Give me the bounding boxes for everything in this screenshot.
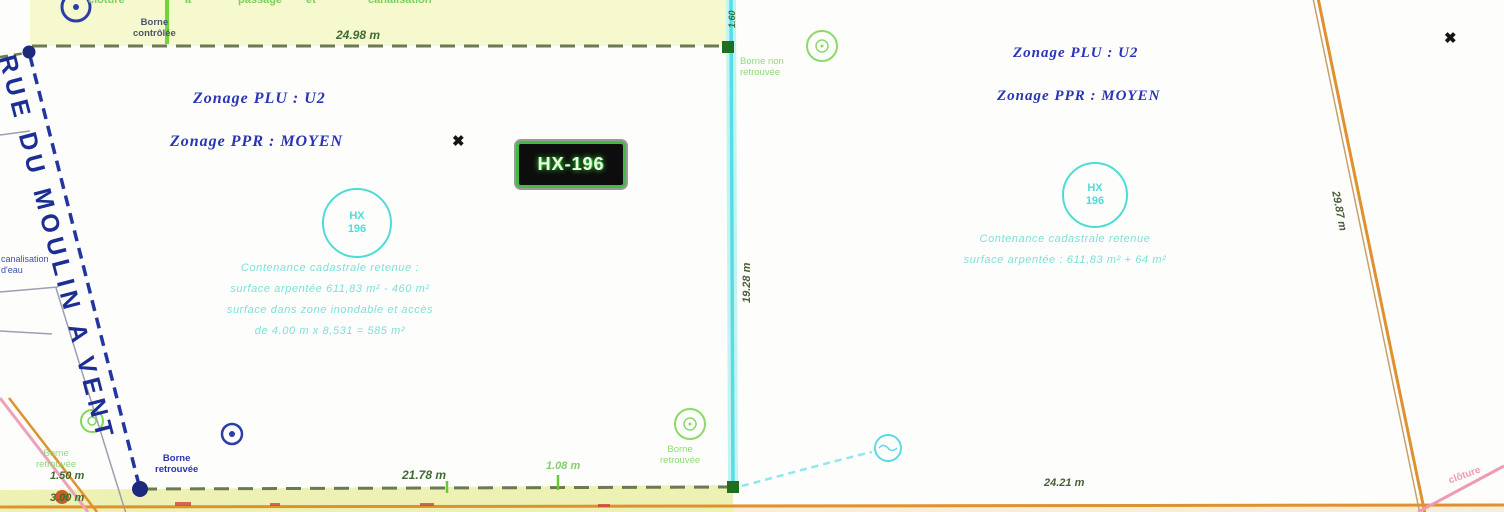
parcel-reference-box: HX-196: [516, 141, 626, 188]
utility-circle-top-center: [807, 31, 837, 61]
borne-label-bottom-center: Borne retrouvée: [660, 444, 700, 467]
parcel-circle-right-line1: HX: [1087, 182, 1102, 195]
surface-notes-left-line3: surface dans zone inondable et accès: [170, 304, 490, 316]
orange-road-edge-thin: [1313, 0, 1420, 512]
blue-target-marker: [222, 424, 242, 444]
x-marker-icon: ✖: [452, 132, 465, 150]
zone-left-ppr: Zonage PPR : MOYEN: [170, 133, 343, 151]
utility-circle-bottom-center: [675, 409, 705, 439]
parcel-circle-left-line2: 196: [348, 223, 366, 236]
water-circle-center: [875, 435, 901, 461]
surface-notes-right-line1: Contenance cadastrale retenue: [920, 233, 1210, 245]
measure-bottom-right: 24.21 m: [1044, 477, 1084, 489]
surface-notes-left-line1: Contenance cadastrale retenue :: [170, 262, 490, 274]
cyan-division-line: [731, 0, 733, 489]
cadastral-plan: Zonage PLU : U2 Zonage PPR : MOYEN Zonag…: [0, 0, 1504, 512]
measure-top-center-vertical: 1.60: [727, 10, 737, 28]
blue-dot-top-left: [23, 46, 36, 59]
x-marker-icon: ✖: [1444, 29, 1457, 47]
top-fragment-5: canalisation: [368, 0, 432, 6]
zone-left-plu: Zonage PLU : U2: [193, 90, 326, 108]
measure-center-vertical: 19.28 m: [741, 263, 753, 303]
cyan-leader: [742, 452, 872, 486]
borne-square-bottom: [727, 481, 739, 493]
top-fragment-4: et: [306, 0, 316, 6]
borne-label-bottom-left-blue: Borne retrouvée: [155, 453, 198, 476]
parcel-circle-right-line2: 196: [1086, 195, 1104, 208]
surface-notes-left-line4: de 4.00 m x 8,531 = 585 m²: [170, 325, 490, 337]
measure-bottom-left-a: 1.50 m: [50, 470, 84, 482]
surface-notes-right-line2: surface arpentée : 611,83 m² + 64 m²: [920, 254, 1210, 266]
measure-bottom-small: 1.08 m: [546, 460, 580, 472]
measure-bottom-center: 21.78 m: [402, 468, 446, 482]
top-fragment-2: a: [185, 0, 191, 6]
parcel-circle-left-line1: HX: [349, 210, 364, 223]
surface-notes-left: Contenance cadastrale retenue : surface …: [170, 262, 490, 346]
measure-top-edge: 24.98 m: [336, 28, 380, 42]
bottom-orange-road: [0, 505, 1504, 507]
orange-road-edge: [1318, 0, 1425, 512]
borne-label-top-left: Borne contrôlée: [133, 17, 176, 40]
surface-notes-right: Contenance cadastrale retenue surface ar…: [920, 233, 1210, 275]
canalisation-label: canalisation d'eau: [1, 254, 49, 276]
measure-bottom-left-b: 3.00 m: [50, 492, 84, 504]
borne-square-top: [722, 41, 734, 53]
surface-notes-left-line2: surface arpentée 611,83 m² - 460 m²: [170, 283, 490, 295]
parcel-circle-right: HX 196: [1062, 162, 1128, 228]
parcel-circle-left: HX 196: [322, 188, 392, 258]
borne-label-top-center: Borne non retrouvée: [740, 56, 784, 79]
zone-right-plu: Zonage PLU : U2: [1013, 45, 1138, 62]
blue-dot-bottom-left: [132, 481, 148, 497]
zone-right-ppr: Zonage PPR : MOYEN: [997, 88, 1160, 105]
top-fragment-1: clôture: [88, 0, 125, 6]
top-fragment-3: passage: [238, 0, 282, 6]
borne-label-bottom-left-green: Borne retrouvée: [36, 448, 76, 471]
